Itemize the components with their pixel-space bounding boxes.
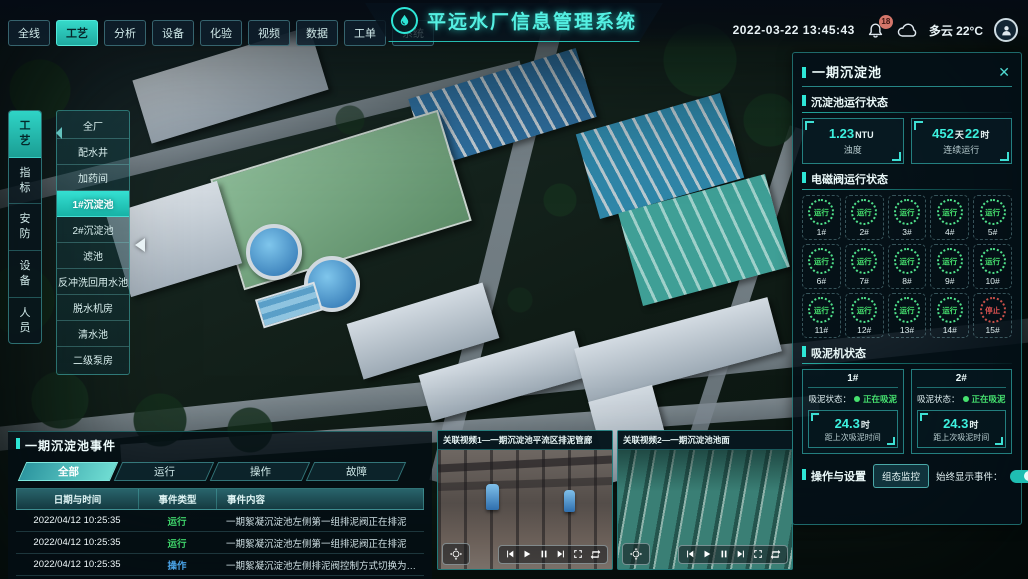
event-filter-tabs: 全部运行操作故障 (16, 462, 424, 481)
valve-id: 13# (900, 325, 914, 335)
pan-icon[interactable] (449, 547, 463, 561)
mud-status-label: 吸泥状态： (917, 393, 960, 405)
skip-forward-icon[interactable] (556, 549, 566, 559)
notification-bell-icon[interactable]: 18 (866, 21, 885, 40)
valve-status-ring: 运行 (937, 248, 963, 274)
valve-indicator[interactable]: 运行 11# (802, 293, 841, 338)
run-status-stats: 1.23NTU 浊度 452天22时 连续运行 (802, 118, 1012, 164)
scada-monitor-button[interactable]: 组态监控 (873, 464, 929, 488)
event-filter-tab[interactable]: 全部 (18, 462, 118, 481)
stat-label: 浊度 (844, 143, 862, 156)
mud-status-value: 正在吸泥 (863, 393, 897, 405)
process-menu-item[interactable]: 全厂 (57, 113, 129, 139)
valve-status-ring: 运行 (980, 199, 1006, 225)
event-row[interactable]: 2022/04/12 10:25:35 操作 一期絮凝沉淀池左侧排泥阀控制方式切… (16, 554, 424, 576)
mud-scraper-card: 1# 吸泥状态：正在吸泥 24.3时 距上次吸泥时间 (802, 369, 904, 454)
event-type-badge: 操作 (167, 561, 186, 572)
valve-status-ring: 运行 (937, 199, 963, 225)
valve-status-ring: 运行 (894, 199, 920, 225)
process-menu-item[interactable]: 2#沉淀池 (57, 217, 129, 243)
event-filter-tab[interactable]: 操作 (210, 462, 310, 481)
valve-status-ring: 运行 (894, 248, 920, 274)
valve-indicator[interactable]: 运行 2# (845, 195, 884, 240)
valve-id: 1# (817, 227, 826, 237)
detail-panel: 一期沉淀池 ✕ 沉淀池运行状态 1.23NTU 浊度 452天22时 连续运行 … (792, 52, 1022, 525)
valve-indicator[interactable]: 停止 15# (973, 293, 1012, 338)
fullscreen-icon[interactable] (753, 549, 763, 559)
valve-indicator[interactable]: 运行 7# (845, 244, 884, 289)
operations-section: 操作与设置 组态监控 始终显示事件： (802, 464, 1012, 488)
video-1-controls (442, 543, 608, 565)
valve-status-ring: 运行 (851, 248, 877, 274)
nav-tab[interactable]: 全线 (8, 20, 50, 46)
event-row[interactable]: 2022/04/12 10:25:35 运行 一期絮凝沉淀池左侧第一组排泥阀正在… (16, 532, 424, 554)
page-title: 平远水厂信息管理系统 (427, 7, 637, 34)
video-2-feed[interactable] (618, 450, 792, 569)
video-1-title: 关联视频1—一期沉淀池平流区排泥管廊 (438, 431, 612, 450)
valve-indicator[interactable]: 运行 8# (888, 244, 927, 289)
event-filter-tab[interactable]: 运行 (114, 462, 214, 481)
nav-tab[interactable]: 工艺 (56, 20, 98, 46)
nav-tab[interactable]: 数据 (296, 20, 338, 46)
top-right-info: 2022-03-22 13:45:43 18 多云 22°C (733, 18, 1018, 42)
valve-status-ring: 运行 (851, 297, 877, 323)
user-avatar-icon[interactable] (994, 18, 1018, 42)
mud-status-value: 正在吸泥 (972, 393, 1006, 405)
valve-id: 15# (985, 325, 999, 335)
valve-indicator[interactable]: 运行 6# (802, 244, 841, 289)
event-filter-tab[interactable]: 故障 (306, 462, 406, 481)
side-tab[interactable]: 指标 (9, 158, 41, 205)
valve-status-ring: 运行 (808, 199, 834, 225)
app-window: { "app": { "title": "平远水厂信息管理系统", "datet… (0, 0, 1028, 579)
valve-indicator[interactable]: 运行 1# (802, 195, 841, 240)
valve-id: 14# (943, 325, 957, 335)
skip-back-icon[interactable] (685, 549, 695, 559)
close-icon[interactable]: ✕ (996, 65, 1012, 79)
loop-icon[interactable] (770, 549, 781, 560)
valve-status-ring: 运行 (851, 199, 877, 225)
event-row[interactable]: 2022/04/12 10:25:35 运行 一期絮凝沉淀池左侧第一组排泥阀正在… (16, 510, 424, 532)
video-1-feed[interactable] (438, 450, 612, 569)
loop-icon[interactable] (590, 549, 601, 560)
detail-panel-header: 一期沉淀池 ✕ (802, 59, 1012, 87)
nav-tab[interactable]: 设备 (152, 20, 194, 46)
valve-indicator[interactable]: 运行 13# (888, 293, 927, 338)
video-panel-1: 关联视频1—一期沉淀池平流区排泥管廊 (437, 430, 613, 570)
mud-scraper-id: 1# (808, 370, 898, 388)
pause-icon[interactable] (719, 549, 729, 559)
video-2-title: 关联视频2—一期沉淀池池面 (618, 431, 792, 450)
event-type-badge: 运行 (167, 539, 186, 550)
skip-forward-icon[interactable] (736, 549, 746, 559)
pump (564, 490, 575, 512)
pause-icon[interactable] (539, 549, 549, 559)
app-header: 平远水厂信息管理系统 (365, 3, 663, 42)
process-menu-item[interactable]: 反冲洗回用水池 (57, 269, 129, 295)
process-menu-item[interactable]: 清水池 (57, 321, 129, 347)
events-panel-title: 一期沉淀池事件 (16, 437, 424, 454)
valve-id: 11# (815, 325, 829, 335)
valve-id: 4# (945, 227, 954, 237)
valve-indicator[interactable]: 运行 14# (930, 293, 969, 338)
stat-label: 连续运行 (943, 143, 979, 156)
process-menu-item[interactable]: 脱水机房 (57, 295, 129, 321)
pan-icon[interactable] (629, 547, 643, 561)
notification-badge: 18 (879, 15, 893, 29)
valve-id: 6# (817, 276, 826, 286)
valves-section-title: 电磁阀运行状态 (802, 171, 1012, 187)
top-bar: 全线工艺分析设备化验视频数据工单系统 平远水厂信息管理系统 2022-03-22… (0, 0, 1028, 48)
pump (486, 484, 499, 510)
valve-status-ring: 运行 (808, 297, 834, 323)
weather-text: 多云 22°C (929, 22, 983, 39)
valve-status-ring: 运行 (937, 297, 963, 323)
valve-id: 12# (857, 325, 871, 335)
operations-title: 操作与设置 (802, 468, 866, 484)
side-tab[interactable]: 安防 (9, 204, 41, 251)
valve-id: 9# (945, 276, 954, 286)
process-menu-item[interactable]: 1#沉淀池 (57, 191, 129, 217)
logo-icon (391, 7, 418, 34)
valve-indicator[interactable]: 运行 3# (888, 195, 927, 240)
mud-scraper-id: 2# (917, 370, 1007, 388)
valve-id: 7# (859, 276, 868, 286)
events-table: 日期与时间 事件类型 事件内容 2022/04/12 10:25:35 运行 一… (16, 488, 424, 579)
mud-stat-card: 24.3时 距上次吸泥时间 (808, 410, 898, 448)
valve-indicator[interactable]: 运行 9# (930, 244, 969, 289)
mud-scraper-card: 2# 吸泥状态：正在吸泥 24.3时 距上次吸泥时间 (911, 369, 1013, 454)
run-status-section-title: 沉淀池运行状态 (802, 94, 1012, 110)
video-2-controls (622, 543, 788, 565)
valve-indicator[interactable]: 运行 4# (930, 195, 969, 240)
valve-indicator[interactable]: 运行 10# (973, 244, 1012, 289)
valve-indicator[interactable]: 运行 5# (973, 195, 1012, 240)
valve-id: 5# (988, 227, 997, 237)
valve-id: 3# (902, 227, 911, 237)
nav-tab[interactable]: 化验 (200, 20, 242, 46)
side-tab-bar: 工艺指标安防设备人员 (8, 110, 42, 344)
process-menu-item[interactable]: 二级泵房 (57, 347, 129, 372)
mud-section-title: 吸泥机状态 (802, 345, 1012, 361)
events-panel: 一期沉淀池事件 全部运行操作故障 日期与时间 事件类型 事件内容 2022/04… (8, 431, 432, 579)
valve-status-ring: 运行 (980, 248, 1006, 274)
play-icon[interactable] (522, 549, 532, 559)
valve-status-ring: 停止 (980, 297, 1006, 323)
stat-card: 452天22时 连续运行 (911, 118, 1013, 164)
valve-status-ring: 运行 (894, 297, 920, 323)
event-type-badge: 运行 (167, 517, 186, 528)
valve-id: 10# (985, 276, 999, 286)
side-tab[interactable]: 工艺 (9, 111, 41, 158)
side-tab[interactable]: 设备 (9, 251, 41, 298)
valve-status-ring: 运行 (808, 248, 834, 274)
status-dot-icon (854, 396, 860, 402)
main-nav-tabs: 全线工艺分析设备化验视频数据工单系统 (8, 20, 434, 46)
mud-scraper-cards: 1# 吸泥状态：正在吸泥 24.3时 距上次吸泥时间 2# 吸泥状态：正在吸泥 … (802, 369, 1012, 454)
mud-stat-card: 24.3时 距上次吸泥时间 (917, 410, 1007, 448)
nav-tab[interactable]: 分析 (104, 20, 146, 46)
video-panel-2: 关联视频2—一期沉淀池池面 (617, 430, 793, 570)
fullscreen-icon[interactable] (573, 549, 583, 559)
detail-panel-title: 一期沉淀池 (802, 62, 882, 81)
process-menu-item[interactable]: 加药间 (57, 165, 129, 191)
nav-tab[interactable]: 视频 (248, 20, 290, 46)
stat-card: 1.23NTU 浊度 (802, 118, 904, 164)
status-dot-icon (963, 396, 969, 402)
mud-status-label: 吸泥状态： (808, 393, 851, 405)
process-menu: 全厂配水井加药间1#沉淀池2#沉淀池滤池反冲洗回用水池脱水机房清水池二级泵房 (56, 110, 130, 375)
events-table-header: 日期与时间 事件类型 事件内容 (16, 488, 424, 510)
play-icon[interactable] (702, 549, 712, 559)
map-pointer-arrow (128, 238, 145, 252)
skip-back-icon[interactable] (505, 549, 515, 559)
valve-grid: 运行 1# 运行 2# 运行 3# 运行 4# (802, 195, 1012, 338)
process-menu-item[interactable]: 配水井 (57, 139, 129, 165)
always-show-events-label: 始终显示事件： (936, 469, 1003, 483)
valve-indicator[interactable]: 运行 12# (845, 293, 884, 338)
always-show-events-toggle[interactable] (1010, 470, 1028, 483)
datetime: 2022-03-22 13:45:43 (733, 23, 855, 37)
weather-cloud-icon (896, 22, 918, 39)
valve-id: 2# (859, 227, 868, 237)
valve-id: 8# (902, 276, 911, 286)
side-tab[interactable]: 人员 (9, 298, 41, 344)
process-menu-item[interactable]: 滤池 (57, 243, 129, 269)
